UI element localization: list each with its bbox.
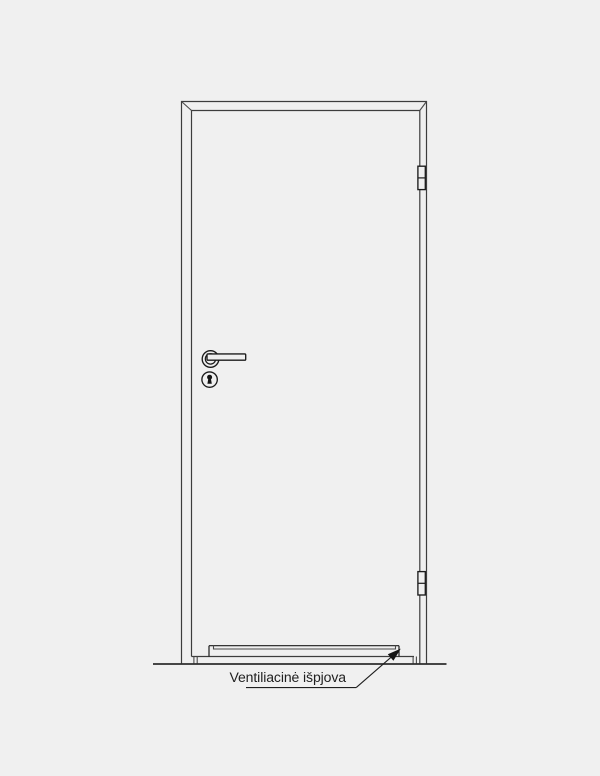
door-frame bbox=[181, 101, 427, 664]
ventilation-cutout bbox=[209, 646, 399, 657]
hinge-top bbox=[418, 166, 425, 189]
door-elevation-drawing: Ventiliacinė išpjova bbox=[0, 0, 600, 776]
drawing-canvas: Ventiliacinė išpjova bbox=[0, 0, 600, 776]
hinge-bottom bbox=[418, 572, 425, 595]
label-ventilation-cutout: Ventiliacinė išpjova bbox=[230, 670, 347, 686]
lever-handle bbox=[202, 351, 246, 368]
door-leaf bbox=[192, 657, 417, 664]
handle-lever-bar bbox=[207, 354, 246, 360]
frame-mitre-top-right bbox=[420, 102, 427, 111]
keyhole bbox=[202, 372, 217, 387]
frame-mitre-top-left bbox=[182, 102, 192, 111]
